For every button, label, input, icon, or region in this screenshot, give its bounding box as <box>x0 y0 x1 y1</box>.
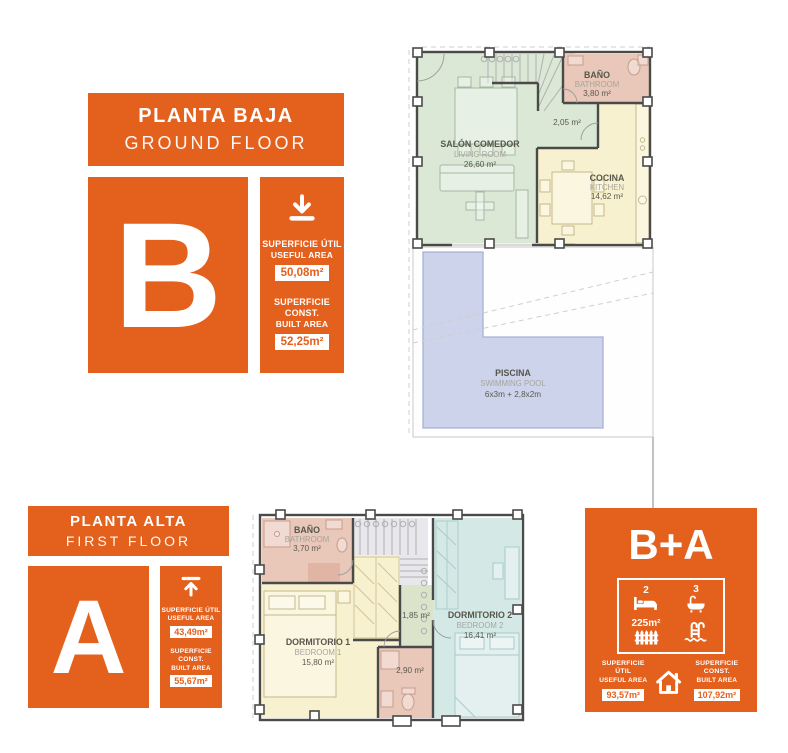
useful-area-label-es: SUPERFICIE ÚTIL <box>161 607 220 615</box>
wc-area-value: 2,90 m² <box>396 666 424 675</box>
features-box: 2 3 225m² <box>617 578 725 654</box>
living-room-label-es: SALÓN COMEDOR <box>440 138 520 149</box>
bedroom2-label-en: BEDROOM 2 <box>457 621 504 630</box>
bedrooms-feature: 2 <box>633 585 659 617</box>
bathroom-label-es: BAÑO <box>294 525 320 535</box>
hall-area-value: 2,05 m² <box>553 118 581 127</box>
first-floor-title-es: PLANTA ALTA <box>70 513 187 530</box>
useful-area-label-es: SUPERFICIE ÚTIL <box>593 660 653 677</box>
pool-label-es: PISCINA <box>495 368 531 378</box>
bathroom-label-es: BAÑO <box>584 70 610 80</box>
bathroom-area-value: 3,80 m² <box>583 89 611 98</box>
useful-area-value: 43,49m² <box>170 626 212 638</box>
bedroom1-label-en: BEDROOM 1 <box>295 648 342 657</box>
ground-floor-title-en: GROUND FLOOR <box>124 133 307 154</box>
summary-letters: B+A <box>585 524 757 566</box>
summary-areas-row: SUPERFICIE ÚTIL USEFUL AREA 93,57m² SUPE… <box>593 660 749 703</box>
summary-useful-area: SUPERFICIE ÚTIL USEFUL AREA 93,57m² <box>593 660 653 703</box>
first-floor-header: PLANTA ALTA FIRST FLOOR <box>28 506 229 556</box>
pool-label-en: SWIMMING POOL <box>480 379 546 388</box>
download-arrow-icon <box>285 193 319 225</box>
site-boundary-line <box>652 437 654 513</box>
living-room-label-en: LIVING ROOM <box>454 150 506 159</box>
useful-area-label-en: USEFUL AREA <box>593 677 653 685</box>
built-area-label-en: BUILT AREA <box>171 665 210 673</box>
pool-ladder-icon <box>683 620 709 644</box>
plot-feature: 225m² <box>632 618 661 650</box>
unit-letter-a: A <box>51 585 127 690</box>
built-area-label-es: SUPERFICIE CONST. <box>160 648 222 664</box>
first-floor-areas-panel: SUPERFICIE ÚTIL USEFUL AREA 43,49m² SUPE… <box>160 566 222 708</box>
bedroom2-area-value: 16,41 m² <box>464 631 497 640</box>
pool-dimensions: 6x3m + 2,8x2m <box>485 390 541 399</box>
bedroom1-area-value: 15,80 m² <box>302 658 335 667</box>
bathtub-icon <box>684 595 708 613</box>
bed-icon <box>633 596 659 612</box>
built-area-value: 55,67m² <box>170 675 212 687</box>
built-area-label-en: BUILT AREA <box>685 677 749 685</box>
built-area-label-es: SUPERFICIE CONST. <box>685 660 749 677</box>
useful-area-value: 50,08m² <box>275 265 330 281</box>
unit-letter-b: B <box>114 200 222 350</box>
first-floor-title-en: FIRST FLOOR <box>66 533 191 549</box>
upload-arrow-icon <box>178 574 204 598</box>
bed2 <box>455 633 519 717</box>
bathrooms-feature: 3 <box>684 584 708 618</box>
bathroom-label-en: BATHROOM <box>285 535 329 544</box>
bathroom-count: 3 <box>684 584 708 595</box>
useful-area-label-es: SUPERFICIE ÚTIL <box>262 239 342 250</box>
useful-area-label-en: USEFUL AREA <box>168 615 215 623</box>
floorplan-brochure: PLANTA BAJA GROUND FLOOR B SUPERFICIE ÚT… <box>0 0 788 753</box>
first-floor-plan: BAÑO BATHROOM 3,70 m² DORMITORIO 1 BEDRO… <box>250 505 530 735</box>
house-icon <box>653 667 684 697</box>
bathroom-label-en: BATHROOM <box>575 80 619 89</box>
bathroom-area-value: 3,70 m² <box>293 544 321 553</box>
kitchen-label-en: KITCHEN <box>590 183 624 192</box>
useful-area-label-en: USEFUL AREA <box>271 250 333 261</box>
summary-built-area: SUPERFICIE CONST. BUILT AREA 107,92m² <box>685 660 749 703</box>
bedroom-count: 2 <box>633 585 659 596</box>
unit-letter-b-tile: B <box>88 177 248 373</box>
unit-letter-a-tile: A <box>28 566 149 708</box>
ground-floor-plan: SALÓN COMEDOR LIVING ROOM 26,60 m² BAÑO … <box>392 40 662 460</box>
plot-area-value: 225m² <box>632 618 661 629</box>
ground-floor-title-es: PLANTA BAJA <box>138 105 293 128</box>
ground-floor-areas-panel: SUPERFICIE ÚTIL USEFUL AREA 50,08m² SUPE… <box>260 177 344 373</box>
bedroom2-label-es: DORMITORIO 2 <box>448 610 512 620</box>
useful-area-value: 93,57m² <box>602 689 644 701</box>
fence-icon <box>633 629 659 645</box>
shower-tray <box>308 563 340 583</box>
built-area-value: 107,92m² <box>694 689 741 701</box>
hall-area-value: 1,85 m² <box>402 611 430 620</box>
bedroom1-label-es: DORMITORIO 1 <box>286 637 350 647</box>
ground-floor-header: PLANTA BAJA GROUND FLOOR <box>88 93 344 166</box>
tv-unit <box>516 190 528 238</box>
built-area-label-es: SUPERFICIE CONST. <box>260 297 344 320</box>
kitchen-label-es: COCINA <box>590 173 625 183</box>
kitchen-area-value: 14,62 m² <box>591 192 624 201</box>
pool-feature <box>683 620 709 649</box>
built-area-label-en: BUILT AREA <box>276 319 329 330</box>
built-area-value: 52,25m² <box>275 334 330 350</box>
living-room-area-value: 26,60 m² <box>464 160 497 169</box>
summary-panel: B+A 2 3 <box>585 508 757 712</box>
kitchen-counter <box>636 104 649 243</box>
